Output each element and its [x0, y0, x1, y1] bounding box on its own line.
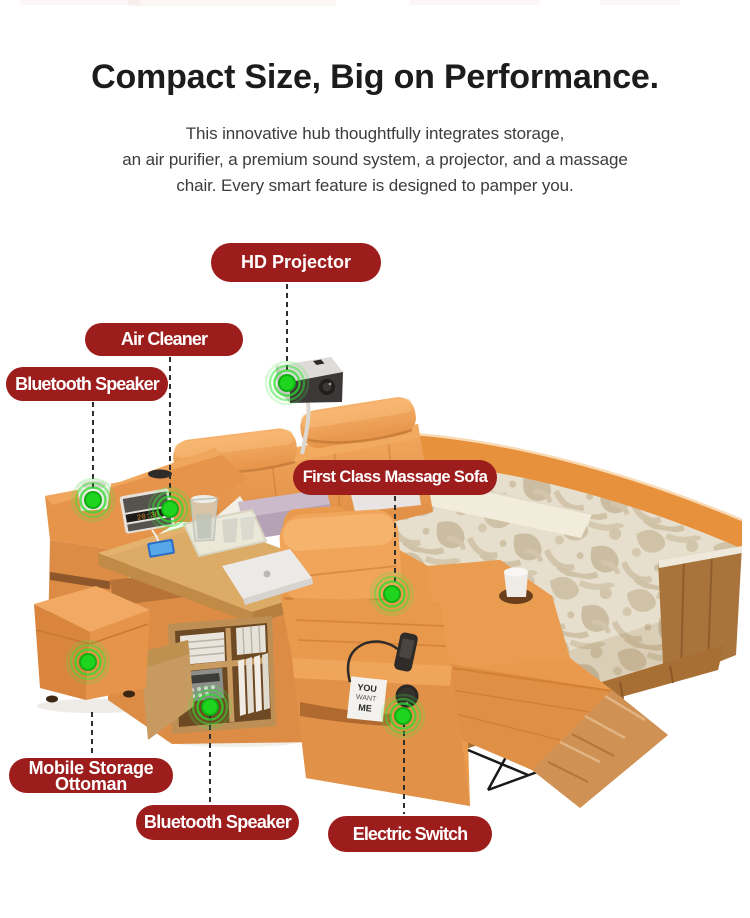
svg-text:YOU: YOU — [357, 682, 377, 694]
svg-text:ME: ME — [358, 702, 372, 713]
